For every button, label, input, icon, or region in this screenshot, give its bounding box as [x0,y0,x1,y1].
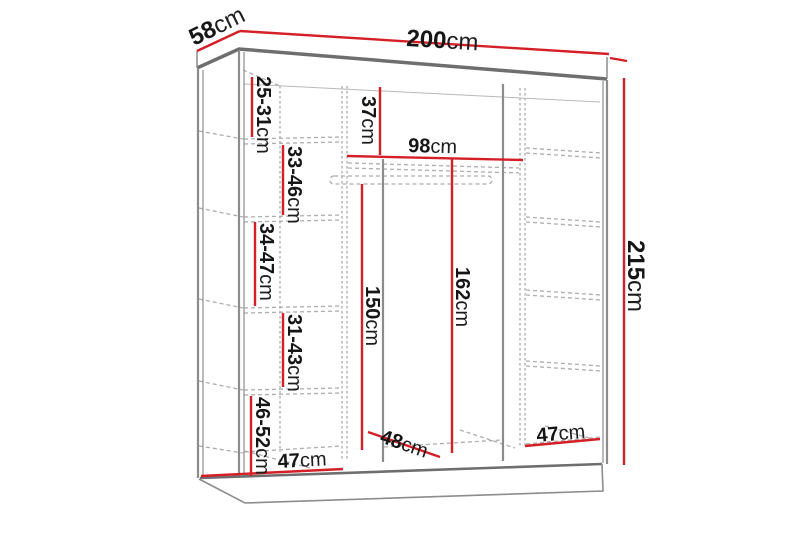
wardrobe-dimension-diagram: 58cm 200cm 215cm 25-31cm 33-46cm 34-47cm… [0,0,800,533]
dim-label-middle-depth: 48cm [377,426,430,463]
dim-label-left-gap-1: 25-31cm [252,76,274,154]
dim-label-middle-inner-width: 98cm [408,135,457,158]
hanging-rail [330,176,492,184]
dim-label-left-gap-3: 34-47cm [255,223,277,301]
dim-label-overall-height: 215cm [622,240,649,312]
dim-label-left-gap-2: 33-46cm [283,146,305,224]
dim-label-overall-depth: 58cm [185,1,250,51]
dim-label-left-gap-5: 46-52cm [251,397,273,475]
dim-label-bottom-left-width: 47cm [277,448,327,473]
dim-label-top-compartment: 37cm [357,96,379,145]
dim-label-middle-height: 162cm [451,267,473,327]
dim-label-bottom-right-width: 47cm [536,421,587,447]
top-panel-front-edge [197,49,607,79]
dim-label-hanging-height: 150cm [361,286,383,346]
dim-label-left-gap-4: 31-43cm [283,314,305,392]
diagram-canvas: 58cm 200cm 215cm 25-31cm 33-46cm 34-47cm… [0,0,800,533]
dim-label-overall-width: 200cm [406,25,480,56]
